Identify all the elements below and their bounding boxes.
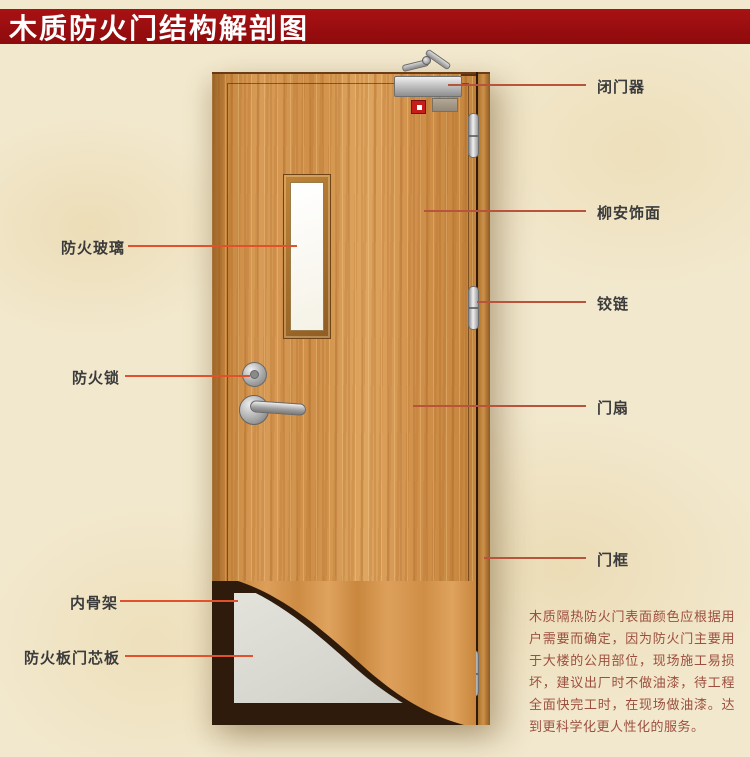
leader-line-door-frame: [484, 557, 586, 559]
door-frame: [478, 72, 490, 725]
diagram-canvas: 木质防火门结构解剖图: [0, 0, 750, 757]
leader-line-inner-skeleton: [120, 600, 238, 602]
product-note: 木质隔热防火门表面颜色应根据用户需要而确定，因为防火门主要用于大楼的公用部位，现…: [529, 607, 735, 739]
label-door-frame: 门框: [597, 549, 629, 570]
leader-line-door-closer: [448, 84, 586, 86]
door-closer-body: [394, 76, 462, 97]
leader-line-core-panel: [125, 655, 253, 657]
label-door-closer: 闭门器: [597, 76, 645, 97]
page-title: 木质防火门结构解剖图: [0, 7, 309, 47]
cutaway-section: [212, 581, 476, 725]
title-banner: 木质防火门结构解剖图: [0, 9, 750, 44]
hinge-middle: [468, 286, 479, 330]
label-hinge: 铰链: [597, 293, 629, 314]
leader-line-veneer: [424, 210, 586, 212]
door-closer-red-badge: [411, 100, 426, 114]
door-closer-label-plate: [432, 98, 458, 112]
door-closer-knuckle-icon: [422, 56, 431, 65]
leader-line-fire-lock: [125, 375, 250, 377]
leader-line-fire-glass: [128, 245, 297, 247]
label-fire-glass: 防火玻璃: [61, 237, 125, 258]
label-door-leaf: 门扇: [597, 397, 629, 418]
fire-glass-window: [290, 182, 324, 331]
label-veneer: 柳安饰面: [597, 202, 661, 223]
leader-line-door-leaf: [413, 405, 586, 407]
hinge-top: [468, 113, 479, 158]
label-fire-lock: 防火锁: [72, 367, 120, 388]
door-closer-mount-line: [461, 74, 476, 76]
leader-line-hinge: [477, 301, 586, 303]
label-inner-skeleton: 内骨架: [70, 592, 118, 613]
label-core-panel: 防火板门芯板: [24, 647, 120, 668]
